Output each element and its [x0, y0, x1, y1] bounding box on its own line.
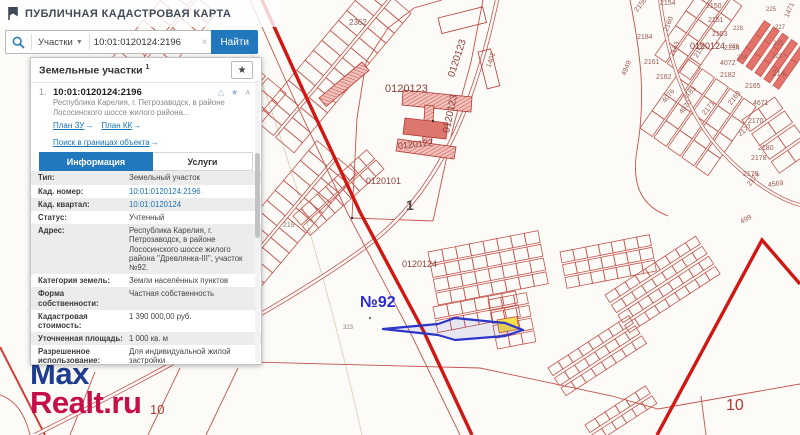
chevron-down-icon: ▼ — [76, 39, 83, 46]
info-row-value: Учтенный — [127, 211, 261, 224]
link-plan-kk[interactable]: План КК→ — [101, 121, 141, 130]
info-row: Статус:Учтенный — [31, 211, 261, 224]
star-icon: ★ — [238, 65, 247, 76]
info-row-value: Республика Карелия, г. Петрозаводск, в р… — [127, 224, 261, 274]
panel-scrollbar-thumb[interactable] — [255, 153, 260, 238]
search-bar: Участки ▼ × Найти — [5, 30, 258, 54]
info-row-label: Форма собственности: — [31, 287, 127, 309]
info-row: Уточненная площадь:1 000 кв. м — [31, 332, 261, 345]
app-title: ПУБЛИЧНАЯ КАДАСТРОВАЯ КАРТА — [25, 8, 231, 20]
link-search-in-bounds[interactable]: Поиск в границах объекта→ — [53, 138, 159, 147]
info-row-value: Земли населённых пунктов — [127, 274, 261, 287]
info-row: Тип:Земельный участок — [31, 171, 261, 184]
link-plan-zu[interactable]: План ЗУ→ — [53, 121, 93, 130]
info-row-label: Кад. номер: — [31, 185, 127, 198]
parcel-links: План ЗУ→ План КК→ Поиск в границах объек… — [53, 121, 253, 147]
info-row-value-link[interactable]: 10:01:0120124:2196 — [127, 185, 261, 198]
info-row-label: Категория земель: — [31, 274, 127, 287]
info-row-label: Статус: — [31, 211, 127, 224]
info-row: Разрешенное использование:Для индивидуал… — [31, 345, 261, 365]
arrow-right-icon: → — [151, 138, 159, 147]
collapse-icon[interactable]: ∧ — [245, 87, 253, 97]
arrow-right-icon: → — [85, 121, 93, 130]
search-input[interactable] — [90, 37, 198, 48]
results-panel: Земельные участки 1 ★ 1. 10:01:0120124:2… — [30, 57, 262, 365]
search-category-label: Участки — [38, 37, 73, 48]
cadastral-map-app: 2362012012301201230120123012012201201011… — [0, 0, 800, 435]
panel-title: Земельные участки 1 — [39, 64, 149, 77]
info-table: Тип:Земельный участокКад. номер:10:01:01… — [31, 171, 261, 365]
pkk-logo-icon — [8, 7, 19, 20]
info-row-label: Кадастровая стоимость: — [31, 310, 127, 332]
clear-icon[interactable]: × — [198, 37, 212, 48]
favorite-icon[interactable]: ★ — [231, 87, 241, 97]
search-icon[interactable] — [6, 36, 31, 49]
info-row: Кад. квартал:10:01:0120124 — [31, 198, 261, 211]
panel-header: Земельные участки 1 ★ — [31, 58, 261, 83]
tab-information[interactable]: Информация — [39, 152, 153, 171]
info-row-label: Кад. квартал: — [31, 198, 127, 211]
app-header: ПУБЛИЧНАЯ КАДАСТРОВАЯ КАРТА — [0, 0, 280, 27]
result-item: 1. 10:01:0120124:2196 △ ★ ∧ Республика К… — [31, 83, 261, 171]
info-row-value: Частная собственность — [127, 287, 261, 309]
favorites-button[interactable]: ★ — [231, 61, 253, 79]
info-row-value: Для индивидуальной жилой застройки — [127, 345, 261, 365]
info-row-value: 1 390 000,00 руб. — [127, 310, 261, 332]
info-row-label: Уточненная площадь: — [31, 332, 127, 345]
info-row-value-link[interactable]: 10:01:0120124 — [127, 198, 261, 211]
info-row: Адрес:Республика Карелия, г. Петрозаводс… — [31, 224, 261, 274]
info-row: Кад. номер:10:01:0120124:2196 — [31, 185, 261, 198]
find-button[interactable]: Найти — [211, 30, 258, 54]
search-category-dropdown[interactable]: Участки ▼ — [32, 37, 89, 48]
info-row: Кадастровая стоимость:1 390 000,00 руб. — [31, 310, 261, 332]
info-row: Форма собственности:Частная собственност… — [31, 287, 261, 309]
result-count: 1 — [145, 64, 149, 71]
warning-icon[interactable]: △ — [218, 87, 227, 97]
info-row-label: Разрешенное использование: — [31, 345, 127, 365]
tab-services[interactable]: Услуги — [153, 152, 253, 171]
arrow-right-icon: → — [133, 121, 141, 130]
info-row-label: Адрес: — [31, 224, 127, 274]
info-row-value: 1 000 кв. м — [127, 332, 261, 345]
info-row-value: Земельный участок — [127, 171, 261, 184]
panel-tabs: Информация Услуги — [39, 152, 253, 171]
parcel-cadastral-number: 10:01:0120124:2196 — [53, 87, 218, 98]
info-row: Категория земель:Земли населённых пункто… — [31, 274, 261, 287]
info-row-label: Тип: — [31, 171, 127, 184]
result-index: 1. — [39, 87, 53, 97]
parcel-address-summary: Республика Карелия, г. Петрозаводск, в р… — [53, 98, 253, 117]
